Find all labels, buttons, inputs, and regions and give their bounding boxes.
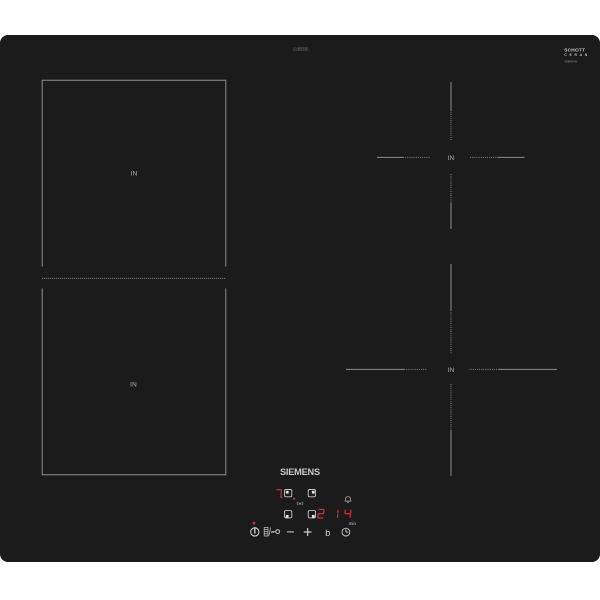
svg-text:IN: IN [130,382,137,389]
svg-text:SIEMENS: SIEMENS [280,467,321,477]
svg-text:EU611BEB1B: EU611BEB1B [293,47,309,52]
svg-text:C E R A N: C E R A N [564,53,588,57]
svg-text:IN: IN [131,171,138,178]
svg-text:IN: IN [448,367,455,374]
svg-text:b: b [325,528,330,538]
svg-text:IN: IN [448,155,455,162]
svg-text:min: min [349,521,357,526]
svg-text:MADE IN GERMANY: MADE IN GERMANY [564,60,578,64]
